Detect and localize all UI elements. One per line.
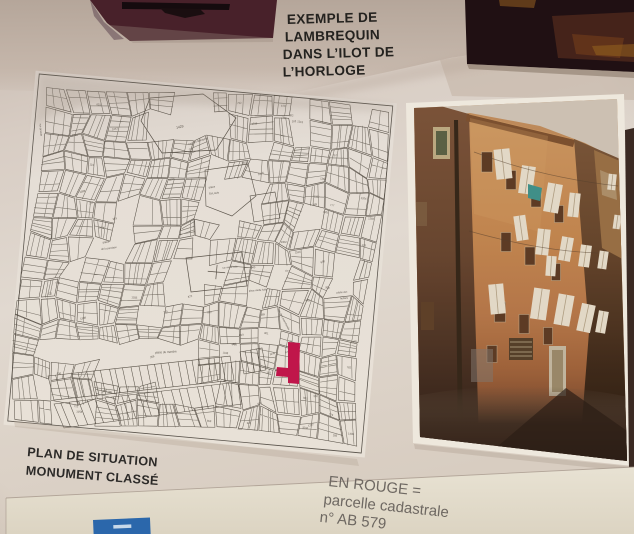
svg-text:1057: 1057	[112, 126, 119, 131]
svg-text:333: 333	[266, 370, 271, 374]
svg-text:EXEMPLE DE: EXEMPLE DE	[287, 10, 378, 27]
svg-text:1296: 1296	[60, 317, 67, 321]
svg-text:1468: 1468	[241, 160, 248, 165]
svg-text:781: 781	[347, 365, 352, 369]
svg-text:DANS L’ILOT DE: DANS L’ILOT DE	[283, 44, 395, 62]
svg-text:1058: 1058	[76, 409, 83, 413]
svg-text:1316: 1316	[251, 121, 258, 126]
svg-text:162: 162	[292, 119, 297, 123]
svg-text:1260: 1260	[368, 216, 375, 221]
svg-text:1436: 1436	[348, 431, 355, 436]
svg-text:1426: 1426	[98, 225, 105, 230]
svg-text:herbes: herbes	[340, 295, 349, 300]
svg-text:712: 712	[74, 404, 79, 408]
svg-text:1324: 1324	[72, 133, 78, 137]
svg-text:1001: 1001	[323, 210, 330, 215]
svg-text:960: 960	[313, 394, 318, 398]
svg-text:286: 286	[333, 433, 338, 437]
svg-text:1164: 1164	[295, 250, 301, 255]
svg-text:1035: 1035	[131, 295, 138, 300]
svg-text:1327: 1327	[314, 194, 321, 199]
svg-text:1165: 1165	[222, 350, 229, 355]
svg-text:LAMBREQUIN: LAMBREQUIN	[285, 27, 381, 44]
svg-text:940: 940	[251, 265, 256, 269]
svg-text:1002: 1002	[281, 240, 287, 244]
svg-text:603: 603	[96, 102, 101, 106]
svg-text:777: 777	[330, 203, 335, 207]
svg-text:1204: 1204	[360, 196, 367, 201]
svg-text:L’HORLOGE: L’HORLOGE	[283, 62, 366, 79]
